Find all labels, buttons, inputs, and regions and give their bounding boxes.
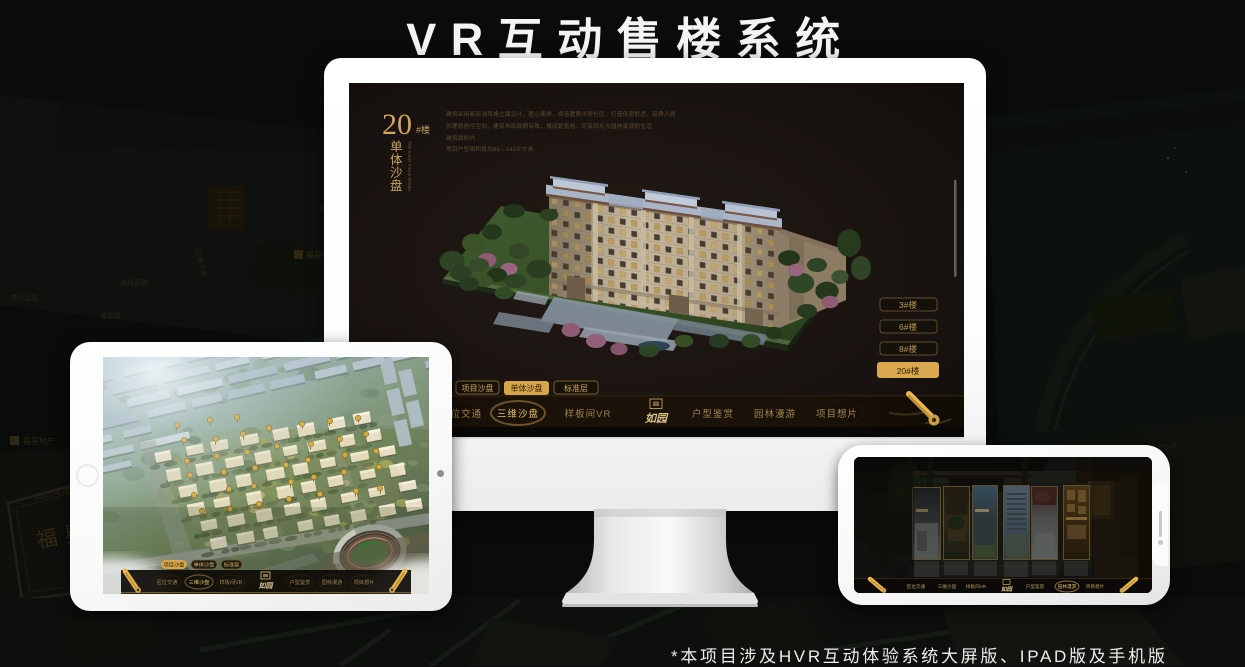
svg-text:项目想片: 项目想片 [354,578,375,586]
svg-text:园林漫游: 园林漫游 [1058,583,1077,590]
svg-text:样板间VR: 样板间VR [966,583,987,590]
svg-text:项目沙盘: 项目沙盘 [164,561,185,569]
svg-text:区位交通: 区位交通 [907,583,926,590]
svg-text:三维沙盘: 三维沙盘 [497,408,539,420]
svg-text:三维沙盘: 三维沙盘 [189,578,210,586]
svg-text:样板间VR: 样板间VR [220,578,243,586]
svg-text:的理想居住空间，建筑布局疏朗有致，楼间距宽裕，尽享阳光与园林: 的理想居住空间，建筑布局疏朗有致，楼间距宽裕，尽享阳光与园林景观的生活 [446,122,652,130]
svg-text:如园: 如园 [1001,586,1014,593]
svg-text:户型鉴赏: 户型鉴赏 [692,408,734,420]
svg-text:海域吴郡: 海域吴郡 [120,278,148,287]
svg-text:如园: 如园 [645,412,669,425]
svg-text:户型鉴赏: 户型鉴赏 [290,578,311,586]
svg-text:区位交通: 区位交通 [157,578,179,586]
svg-text:体: 体 [390,153,403,167]
svg-text:单体沙盘: 单体沙盘 [194,561,215,569]
svg-text:THE SAND TABLE MODEL: THE SAND TABLE MODEL [407,141,412,193]
svg-text:园林漫游: 园林漫游 [322,578,343,586]
svg-text:8#楼: 8#楼 [899,344,917,354]
svg-text:沙: 沙 [390,166,403,180]
svg-text:项目想片: 项目想片 [1086,583,1105,590]
svg-text:建筑采用新亚洲风格立面设计、匠心美学，缔造墅质洋房社区，打造: 建筑采用新亚洲风格立面设计、匠心美学，缔造墅质洋房社区，打造低密舒适、品质人居 [446,110,676,118]
svg-text:福星路: 福星路 [100,311,121,320]
svg-text:项目户型面积段为89—143平方米: 项目户型面积段为89—143平方米 [446,145,534,153]
svg-text:#楼: #楼 [416,124,430,135]
svg-text:城际北路: 城际北路 [10,293,38,302]
svg-text:三维沙盘: 三维沙盘 [938,583,957,590]
svg-text:3#楼: 3#楼 [899,300,917,310]
svg-text:样板间VR: 样板间VR [565,408,612,420]
svg-text:标准层: 标准层 [564,383,588,393]
svg-text:建筑面积约: 建筑面积约 [446,134,476,142]
svg-text:20#楼: 20#楼 [897,366,920,376]
svg-text:盘: 盘 [390,178,403,193]
svg-text:6#楼: 6#楼 [899,322,917,332]
svg-text:园林漫游: 园林漫游 [754,408,796,420]
svg-text:标准层: 标准层 [224,561,240,569]
svg-text:单体沙盘: 单体沙盘 [511,383,543,393]
svg-text:项目沙盘: 项目沙盘 [462,383,494,393]
svg-text:福星地产: 福星地产 [23,436,55,446]
svg-text:户型鉴赏: 户型鉴赏 [1026,583,1045,590]
svg-text:20: 20 [382,108,412,141]
svg-text:单: 单 [390,140,403,154]
svg-text:项目想片: 项目想片 [816,408,858,420]
svg-text:如园: 如园 [259,581,275,590]
